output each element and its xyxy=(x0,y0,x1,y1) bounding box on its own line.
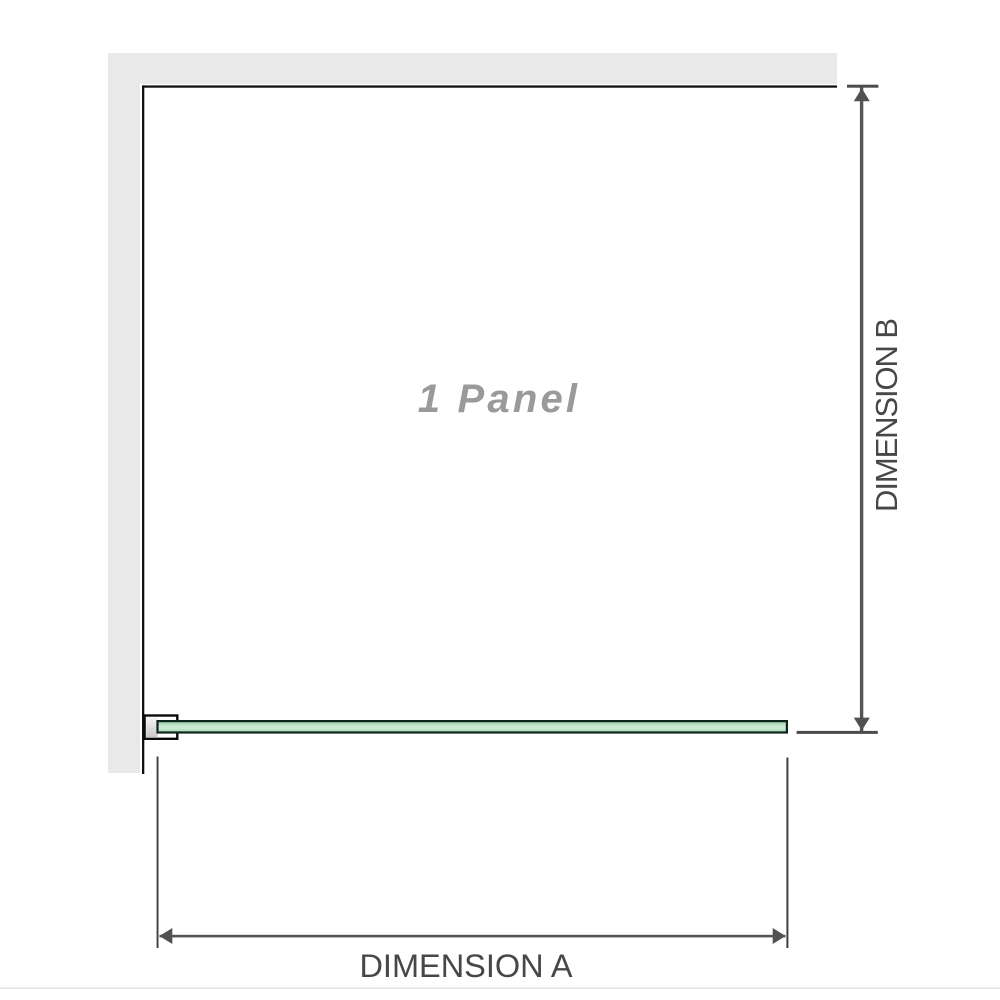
svg-text:1 Panel: 1 Panel xyxy=(418,377,580,421)
svg-text:DIMENSION B: DIMENSION B xyxy=(869,319,904,512)
svg-text:DIMENSION A: DIMENSION A xyxy=(359,948,572,984)
